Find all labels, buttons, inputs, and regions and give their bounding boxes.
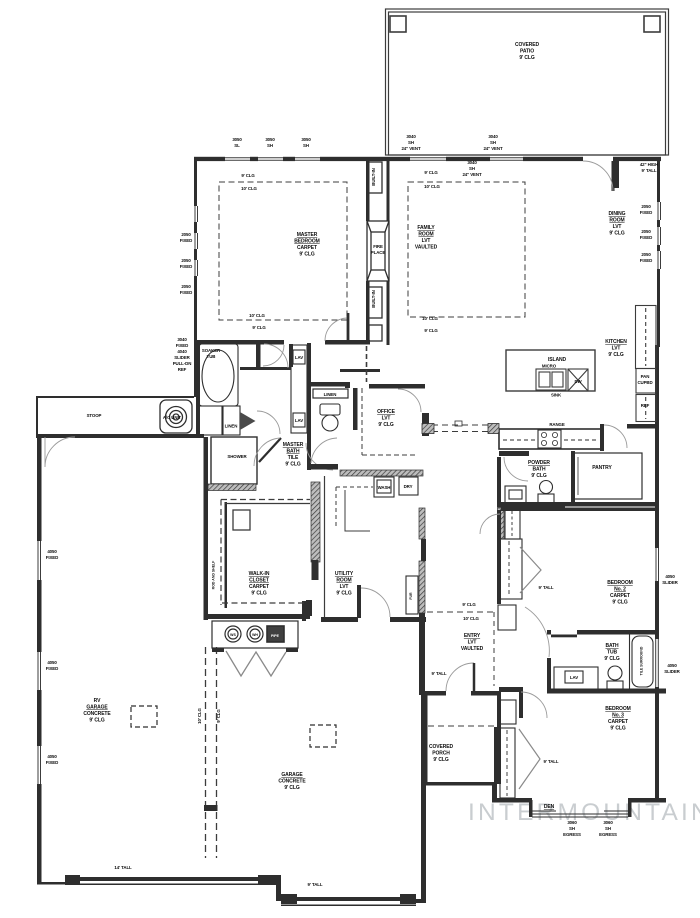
svg-text:VAULTED: VAULTED: [461, 646, 484, 652]
svg-text:STOOP: STOOP: [87, 413, 102, 418]
svg-text:LVT: LVT: [340, 584, 349, 590]
svg-text:9' CLG: 9' CLG: [252, 325, 266, 330]
svg-text:9' CLG: 9' CLG: [612, 600, 628, 606]
svg-text:OFFICE: OFFICE: [377, 409, 395, 415]
svg-text:24" VENT: 24" VENT: [483, 146, 503, 151]
svg-text:SHOWER: SHOWER: [227, 454, 247, 459]
svg-text:CARPET: CARPET: [297, 245, 317, 251]
svg-text:SH: SH: [490, 140, 496, 145]
svg-text:2050: 2050: [641, 204, 651, 209]
svg-text:WALK-IN: WALK-IN: [249, 571, 270, 577]
svg-text:LVT: LVT: [422, 238, 431, 244]
svg-text:MASTER: MASTER: [297, 232, 318, 238]
svg-text:9' CLG: 9' CLG: [604, 656, 620, 662]
svg-text:9' TALL: 9' TALL: [432, 671, 447, 676]
svg-text:SOAKER: SOAKER: [202, 348, 221, 353]
svg-text:10' CLG: 10' CLG: [241, 186, 257, 191]
svg-text:LVT: LVT: [613, 224, 622, 230]
svg-text:FIXED: FIXED: [640, 258, 652, 263]
svg-text:CARPET: CARPET: [608, 719, 628, 725]
svg-text:CLOSET: CLOSET: [249, 578, 269, 584]
svg-text:2050: 2050: [641, 252, 651, 257]
svg-text:CARPET: CARPET: [249, 584, 269, 590]
svg-text:FIXED: FIXED: [46, 666, 58, 671]
svg-text:BUILT-IN: BUILT-IN: [371, 290, 376, 307]
svg-text:DRY: DRY: [404, 484, 413, 489]
svg-text:9' CLG: 9' CLG: [433, 757, 449, 763]
svg-text:3040: 3040: [488, 134, 498, 139]
svg-text:SH: SH: [408, 140, 414, 145]
svg-text:TILE SURROUND: TILE SURROUND: [640, 646, 644, 675]
svg-text:3050: 3050: [265, 137, 275, 142]
svg-text:ISLAND: ISLAND: [548, 357, 567, 363]
svg-text:9' TALL: 9' TALL: [642, 168, 657, 173]
svg-text:LVT: LVT: [468, 640, 477, 646]
svg-text:SH: SH: [267, 143, 273, 148]
svg-text:9' CLG: 9' CLG: [531, 473, 547, 479]
svg-text:42" HIGH: 42" HIGH: [640, 162, 658, 167]
svg-text:WH: WH: [252, 633, 258, 637]
svg-text:TUB: TUB: [207, 354, 216, 359]
svg-text:CARPET: CARPET: [610, 593, 630, 599]
svg-text:9' TALL: 9' TALL: [544, 759, 559, 764]
svg-text:DINING: DINING: [609, 211, 626, 217]
svg-text:4050: 4050: [47, 660, 57, 665]
svg-text:MICRO: MICRO: [542, 364, 557, 369]
svg-text:9' CLG: 9' CLG: [216, 709, 221, 723]
svg-text:4050: 4050: [47, 549, 57, 554]
svg-text:9' CLG: 9' CLG: [462, 602, 476, 607]
svg-text:3050: 3050: [301, 137, 311, 142]
svg-text:KITCHEN: KITCHEN: [605, 339, 627, 345]
svg-text:10' CLG: 10' CLG: [197, 707, 202, 723]
svg-text:TUB: TUB: [607, 650, 617, 656]
svg-text:BATH: BATH: [605, 643, 619, 649]
svg-text:9' CLG: 9' CLG: [285, 462, 301, 468]
svg-text:10' CLG: 10' CLG: [463, 616, 479, 621]
svg-text:4040: 4040: [177, 349, 187, 354]
svg-text:ENTRY: ENTRY: [464, 633, 481, 639]
svg-text:CONCRETE: CONCRETE: [83, 711, 111, 717]
svg-text:CONCRETE: CONCRETE: [278, 779, 306, 785]
svg-text:9' CLG: 9' CLG: [424, 170, 438, 175]
svg-text:No. 3: No. 3: [612, 713, 624, 719]
svg-text:COVERED: COVERED: [429, 744, 454, 750]
svg-text:9' CLG: 9' CLG: [251, 591, 267, 597]
svg-text:REF: REF: [178, 367, 187, 372]
svg-text:REF: REF: [641, 403, 650, 408]
svg-text:BEDROOM: BEDROOM: [605, 706, 630, 712]
svg-text:PIPE: PIPE: [271, 634, 280, 638]
svg-text:WASH: WASH: [378, 485, 391, 490]
svg-text:2050: 2050: [641, 229, 651, 234]
svg-text:RV: RV: [94, 698, 101, 704]
svg-text:9' CLG: 9' CLG: [284, 785, 300, 791]
svg-text:9' TALL: 9' TALL: [539, 585, 554, 590]
svg-text:PLACE: PLACE: [371, 250, 386, 255]
svg-text:9' CLG: 9' CLG: [519, 55, 535, 61]
svg-text:4050: 4050: [665, 574, 675, 579]
svg-text:COVERED: COVERED: [515, 42, 540, 48]
svg-text:FIXED: FIXED: [180, 264, 192, 269]
svg-text:EGRESS: EGRESS: [563, 832, 581, 837]
svg-text:BEDROOM: BEDROOM: [607, 580, 632, 586]
svg-text:A/C UNIT: A/C UNIT: [163, 415, 182, 420]
svg-text:14' TALL: 14' TALL: [114, 865, 132, 870]
svg-text:SH: SH: [569, 826, 575, 831]
svg-text:9' CLG: 9' CLG: [378, 422, 394, 428]
svg-text:2050: 2050: [181, 232, 191, 237]
svg-text:BATH: BATH: [532, 467, 546, 473]
svg-text:3050: 3050: [232, 137, 242, 142]
svg-text:3040: 3040: [177, 337, 187, 342]
svg-text:LAV: LAV: [570, 675, 578, 680]
svg-text:LINEN: LINEN: [324, 392, 337, 397]
svg-text:10' CLG: 10' CLG: [422, 316, 438, 321]
svg-text:LVT: LVT: [612, 346, 621, 352]
svg-text:24" VENT: 24" VENT: [401, 146, 421, 151]
svg-text:GARAGE: GARAGE: [281, 772, 303, 778]
svg-text:FIXED: FIXED: [180, 238, 192, 243]
svg-text:PAN: PAN: [641, 374, 650, 379]
svg-text:BEDROOM: BEDROOM: [294, 239, 319, 245]
svg-text:BUILT-IN: BUILT-IN: [371, 168, 376, 185]
svg-text:10' CLG: 10' CLG: [424, 184, 440, 189]
svg-text:9' CLG: 9' CLG: [241, 173, 255, 178]
svg-text:WS: WS: [230, 633, 236, 637]
svg-text:LAV: LAV: [295, 355, 303, 360]
svg-text:PATIO: PATIO: [520, 49, 534, 55]
svg-text:GARAGE: GARAGE: [86, 705, 108, 711]
svg-text:FAMILY: FAMILY: [417, 225, 435, 231]
svg-text:BATH: BATH: [286, 449, 300, 455]
svg-text:UTILITY: UTILITY: [335, 571, 354, 577]
svg-text:SLIDER: SLIDER: [664, 669, 680, 674]
svg-text:FUR: FUR: [409, 592, 413, 600]
svg-text:LAV: LAV: [295, 418, 303, 423]
svg-text:4050: 4050: [47, 754, 57, 759]
svg-text:FIXED: FIXED: [640, 210, 652, 215]
svg-text:9' CLG: 9' CLG: [89, 718, 105, 724]
svg-text:PANTRY: PANTRY: [592, 465, 612, 471]
svg-text:10' CLG: 10' CLG: [249, 313, 265, 318]
svg-text:9' CLG: 9' CLG: [424, 328, 438, 333]
svg-text:2050: 2050: [181, 258, 191, 263]
svg-text:POWDER: POWDER: [528, 460, 550, 466]
svg-text:LINEN: LINEN: [225, 424, 238, 429]
svg-text:VAULTED: VAULTED: [415, 245, 438, 251]
svg-text:9' TALL: 9' TALL: [308, 882, 323, 887]
svg-text:SH: SH: [469, 166, 475, 171]
svg-text:RANGE: RANGE: [549, 422, 565, 427]
svg-text:3040: 3040: [467, 160, 477, 165]
svg-text:LVT: LVT: [382, 416, 391, 422]
svg-text:SH: SH: [605, 826, 611, 831]
svg-text:TILE: TILE: [288, 455, 299, 461]
svg-text:EGRESS: EGRESS: [599, 832, 617, 837]
svg-text:9' CLG: 9' CLG: [608, 352, 624, 358]
svg-text:INTERMOUNTAIN: INTERMOUNTAIN: [468, 799, 700, 826]
svg-text:3060: 3060: [603, 820, 613, 825]
svg-text:FIXED: FIXED: [180, 290, 192, 295]
svg-text:ROD AND SHELF: ROD AND SHELF: [212, 560, 216, 590]
svg-text:9' CLG: 9' CLG: [610, 726, 626, 732]
svg-text:DW: DW: [574, 379, 582, 384]
svg-text:24" VENT: 24" VENT: [462, 172, 482, 177]
svg-text:CUPBD: CUPBD: [637, 380, 652, 385]
svg-text:PULL-DN: PULL-DN: [173, 361, 192, 366]
svg-text:FIXED: FIXED: [46, 555, 58, 560]
svg-text:SH: SH: [303, 143, 309, 148]
svg-text:ROOM: ROOM: [336, 578, 351, 584]
svg-text:4050: 4050: [667, 663, 677, 668]
svg-text:ROOM: ROOM: [609, 218, 624, 224]
svg-text:FIXED: FIXED: [640, 235, 652, 240]
svg-text:9' CLG: 9' CLG: [336, 591, 352, 597]
svg-text:9' CLG: 9' CLG: [609, 231, 625, 237]
svg-text:3040: 3040: [406, 134, 416, 139]
svg-text:No. 2: No. 2: [614, 587, 626, 593]
svg-text:MASTER: MASTER: [283, 442, 304, 448]
svg-text:PORCH: PORCH: [432, 751, 450, 757]
svg-text:SLIDER: SLIDER: [662, 580, 678, 585]
svg-text:SINK: SINK: [551, 393, 562, 398]
svg-text:2050: 2050: [181, 284, 191, 289]
svg-text:SLIDER: SLIDER: [174, 355, 190, 360]
svg-text:SL: SL: [234, 143, 240, 148]
svg-text:FIRE: FIRE: [373, 244, 383, 249]
svg-text:FIXED: FIXED: [46, 760, 58, 765]
svg-text:9' CLG: 9' CLG: [299, 252, 315, 258]
svg-text:FIXED: FIXED: [176, 343, 188, 348]
svg-text:3060: 3060: [567, 820, 577, 825]
svg-text:ROOM: ROOM: [418, 232, 433, 238]
svg-text:DEN: DEN: [544, 804, 555, 810]
